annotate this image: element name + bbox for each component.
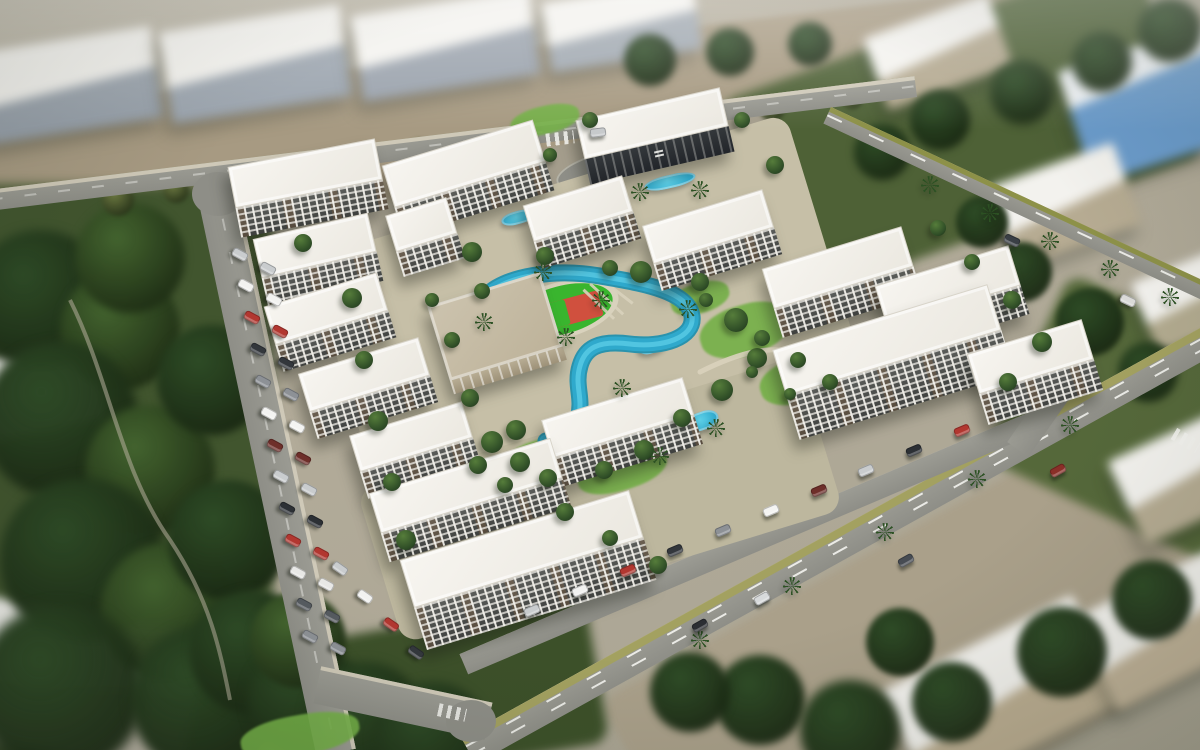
crosswalk <box>545 130 574 146</box>
crosswalk <box>437 703 467 722</box>
aerial-compound-render <box>0 0 1200 750</box>
crosswalk <box>1171 428 1200 453</box>
road-markings-layer <box>0 0 1200 750</box>
